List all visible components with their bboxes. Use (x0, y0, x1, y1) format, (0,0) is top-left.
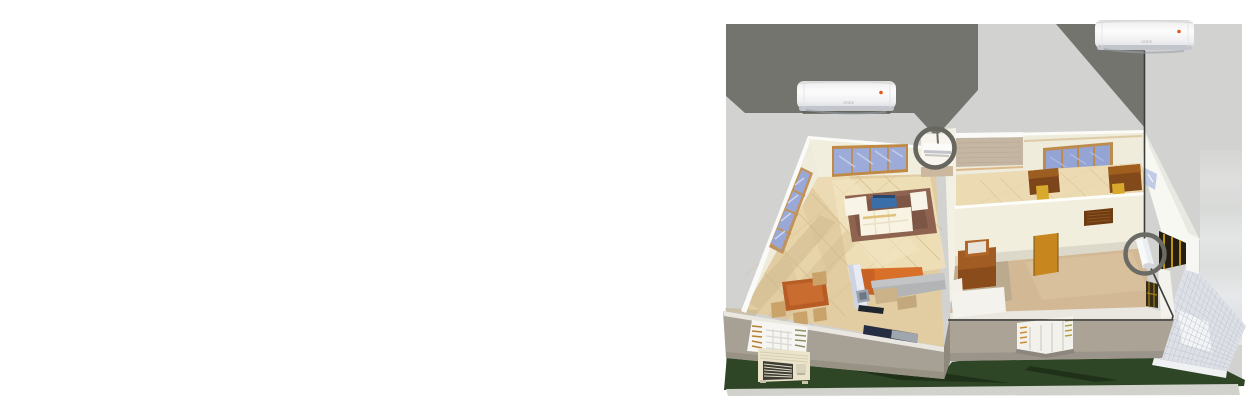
svg-text:GREE: GREE (1141, 39, 1153, 44)
svg-text:GREE: GREE (843, 100, 855, 105)
